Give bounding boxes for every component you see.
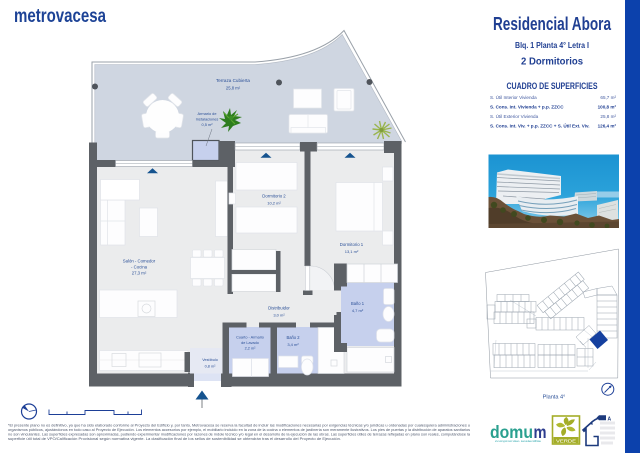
svg-text:Baño 1: Baño 1 bbox=[351, 301, 365, 306]
svg-text:2 Dormitorios: 2 Dormitorios bbox=[521, 57, 583, 68]
svg-text:Dormitorio 1: Dormitorio 1 bbox=[340, 242, 364, 247]
svg-text:Vestíbulo: Vestíbulo bbox=[202, 358, 218, 362]
svg-text:0,8 m²: 0,8 m² bbox=[205, 365, 216, 369]
svg-text:Terraza Cubierta: Terraza Cubierta bbox=[216, 78, 250, 83]
svg-text:de Lavado: de Lavado bbox=[241, 341, 259, 345]
svg-text:126,4 m²: 126,4 m² bbox=[598, 124, 617, 129]
svg-text:Dormitorio 2: Dormitorio 2 bbox=[262, 194, 286, 199]
svg-text:Instalaciones: Instalaciones bbox=[196, 117, 219, 122]
svg-text:Salón - Comedor: Salón - Comedor bbox=[123, 259, 156, 264]
svg-text:13,1 m²: 13,1 m² bbox=[345, 249, 359, 254]
svg-text:Residencial Abora: Residencial Abora bbox=[493, 13, 612, 34]
svg-text:metrovacesa: metrovacesa bbox=[14, 5, 106, 27]
svg-text:organismos públicos, ajustándo: organismos públicos, ajustándonos en tod… bbox=[8, 428, 470, 432]
svg-text:*El presente plano no es defin: *El presente plano no es definitivo, ya … bbox=[8, 424, 470, 428]
svg-text:CUADRO DE SUPERFICIES: CUADRO DE SUPERFICIES bbox=[507, 81, 598, 91]
svg-text:S. Útil Interior Vivienda: S. Útil Interior Vivienda bbox=[490, 94, 537, 100]
svg-text:25,8 m²: 25,8 m² bbox=[226, 86, 241, 91]
svg-text:S. Cons. Int. Vivienda + p.p.: S. Cons. Int. Vivienda + p.p. ZZCC bbox=[490, 105, 564, 110]
svg-text:Planta 4°: Planta 4° bbox=[543, 395, 566, 401]
svg-text:A: A bbox=[608, 416, 612, 422]
svg-text:27,3 m²: 27,3 m² bbox=[132, 271, 147, 276]
svg-text:0,5 m²: 0,5 m² bbox=[201, 122, 213, 127]
svg-text:25,8 m²: 25,8 m² bbox=[600, 114, 616, 119]
svg-text:10,2 m²: 10,2 m² bbox=[267, 201, 281, 206]
svg-text:3,0 m²: 3,0 m² bbox=[273, 313, 285, 318]
svg-text:2,2 m²: 2,2 m² bbox=[245, 347, 256, 351]
svg-text:- Cocina: - Cocina bbox=[131, 265, 148, 270]
svg-text:no son vinculantes. Las superf: no son vinculantes. Las superficies expr… bbox=[8, 433, 470, 437]
svg-text:S. Útil Exterior Vivienda: S. Útil Exterior Vivienda bbox=[490, 113, 539, 119]
svg-text:100,8 m²: 100,8 m² bbox=[598, 105, 617, 110]
svg-text:S. Cons. Int. Viv. + p.p. ZZCC: S. Cons. Int. Viv. + p.p. ZZCC + S. Útil… bbox=[490, 123, 589, 129]
svg-text:3,4 m²: 3,4 m² bbox=[287, 342, 299, 347]
svg-text:compromiso sostenible: compromiso sostenible bbox=[495, 439, 541, 443]
svg-text:Cuarto - Armario: Cuarto - Armario bbox=[236, 336, 264, 340]
svg-text:4,7 m²: 4,7 m² bbox=[352, 308, 364, 313]
svg-text:VERDE: VERDE bbox=[556, 438, 576, 443]
svg-text:Armario de: Armario de bbox=[197, 111, 216, 116]
svg-text:superficie útil total de VPO/C: superficie útil total de VPO/Calificació… bbox=[8, 437, 341, 441]
svg-text:Blq. 1 Planta 4° Letra I: Blq. 1 Planta 4° Letra I bbox=[515, 41, 589, 50]
svg-text:Baño 2: Baño 2 bbox=[287, 335, 301, 340]
svg-text:65,7 m²: 65,7 m² bbox=[600, 95, 616, 100]
svg-text:Distribuidor: Distribuidor bbox=[268, 306, 290, 311]
